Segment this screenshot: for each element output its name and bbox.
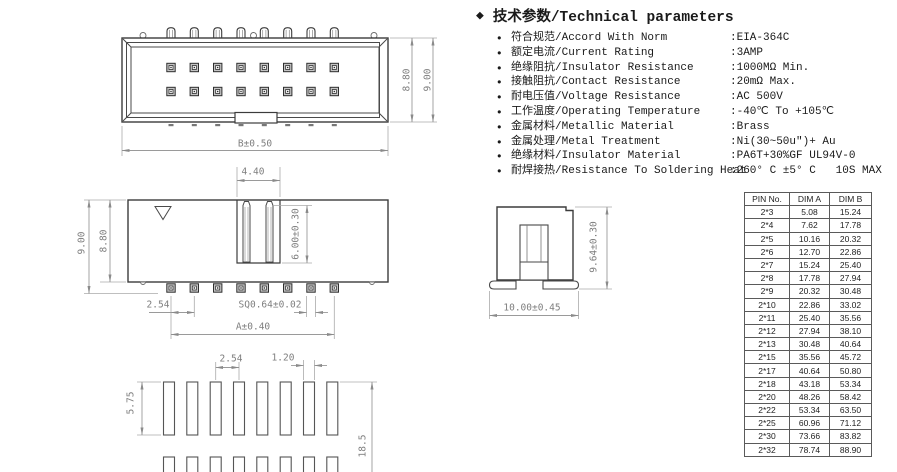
cell-dim-a: 7.62 [790, 219, 830, 232]
dim-label-front-880: 8.80 [99, 230, 109, 253]
parameter-value: :Ni(30~50u")+ Au [730, 135, 836, 150]
cell-dim-a: 20.32 [790, 285, 830, 298]
table-row: 2*12 27.94 38.10 [745, 324, 872, 337]
table-row: 2*17 40.64 50.80 [745, 364, 872, 377]
dim-label-front-900: 9.00 [77, 232, 87, 255]
cell-dim-b: 63.50 [830, 404, 872, 417]
polarization-notch [235, 113, 277, 124]
cell-dim-b: 22.86 [830, 245, 872, 258]
cell-dim-b: 50.80 [830, 364, 872, 377]
dim-label-185: 18.5 [358, 435, 368, 458]
cell-dim-b: 45.72 [830, 351, 872, 364]
table-row: 2*20 48.26 58.42 [745, 390, 872, 403]
bullet-icon: ● [497, 165, 511, 180]
parameter-label: 金属处理/Metal Treatment [511, 135, 730, 150]
bullet-icon: ● [497, 76, 511, 91]
cell-dim-b: 35.56 [830, 311, 872, 324]
cell-dim-a: 10.16 [790, 232, 830, 245]
footprint-drawing [137, 360, 377, 472]
dim-label-b: B±0.50 [238, 139, 272, 149]
cell-dim-b: 15.24 [830, 206, 872, 219]
cell-dim-b: 71.12 [830, 417, 872, 430]
parameter-label: 额定电流/Current Rating [511, 46, 730, 61]
parameter-value: :AC 500V [730, 90, 783, 105]
table-row: 2*4 7.62 17.78 [745, 219, 872, 232]
cell-pin-no: 2*7 [745, 258, 790, 271]
parameter-row: ● 额定电流/Current Rating :3AMP [497, 46, 896, 61]
top-view-drawing [122, 28, 437, 156]
cell-dim-a: 48.26 [790, 390, 830, 403]
parameter-value: :1000MΩ Min. [730, 61, 809, 76]
parameter-list: ● 符合规范/Accord With Norm :EIA-364C ● 额定电流… [476, 31, 896, 179]
dimensions-table: PIN No. DIM A DIM B 2*3 5.08 15.24 2*4 7… [744, 192, 872, 457]
cell-pin-no: 2*4 [745, 219, 790, 232]
dim-label-575: 5.75 [126, 392, 136, 415]
table-row: 2*10 22.86 33.02 [745, 298, 872, 311]
cell-pin-no: 2*10 [745, 298, 790, 311]
table-row: 2*30 73.66 83.82 [745, 430, 872, 443]
bullet-icon: ● [497, 106, 511, 121]
dim-label-front-254: 2.54 [147, 300, 170, 310]
header-dim-b: DIM B [830, 193, 872, 206]
table-row: 2*3 5.08 15.24 [745, 206, 872, 219]
cell-dim-a: 73.66 [790, 430, 830, 443]
parameter-row: ● 绝缘阻抗/Insulator Resistance :1000MΩ Min. [497, 61, 896, 76]
parameter-label: 绝缘材料/Insulator Material [511, 149, 730, 164]
dim-label-a: A±0.40 [236, 322, 270, 332]
cell-dim-b: 53.34 [830, 377, 872, 390]
dim-label-sq064: SQ0.64±0.02 [239, 300, 302, 310]
table-row: 2*18 43.18 53.34 [745, 377, 872, 390]
parameter-row: ● 工作温度/Operating Temperature :-40℃ To +1… [497, 105, 896, 120]
parameter-row: ● 接触阻抗/Contact Resistance :20mΩ Max. [497, 75, 896, 90]
parameter-label: 耐焊接热/Resistance To Soldering Heat [511, 164, 730, 179]
cell-pin-no: 2*12 [745, 324, 790, 337]
parameter-label: 符合规范/Accord With Norm [511, 31, 730, 46]
parameter-value: :Brass [730, 120, 770, 135]
cell-pin-no: 2*13 [745, 338, 790, 351]
bullet-icon: ● [497, 91, 511, 106]
table-header-row: PIN No. DIM A DIM B [745, 193, 872, 206]
cell-pin-no: 2*30 [745, 430, 790, 443]
bullet-icon: ● [497, 62, 511, 77]
cell-pin-no: 2*17 [745, 364, 790, 377]
cell-dim-a: 60.96 [790, 417, 830, 430]
cell-dim-a: 22.86 [790, 298, 830, 311]
parameter-row: ● 绝缘材料/Insulator Material :PA6T+30%GF UL… [497, 149, 896, 164]
bullet-icon: ● [497, 136, 511, 151]
bullet-icon: ● [497, 47, 511, 62]
dim-label-fp-120: 1.20 [272, 353, 295, 363]
dim-label-440: 4.40 [242, 167, 265, 177]
cell-dim-a: 17.78 [790, 272, 830, 285]
cell-pin-no: 2*18 [745, 377, 790, 390]
diamond-icon: ◆ [476, 9, 484, 22]
parameter-value: :260° C ±5° C 10S MAX [730, 164, 882, 179]
cell-dim-b: 88.90 [830, 443, 872, 456]
cell-dim-a: 43.18 [790, 377, 830, 390]
cell-pin-no: 2*11 [745, 311, 790, 324]
header-pin-no: PIN No. [745, 193, 790, 206]
parameter-label: 接触阻抗/Contact Resistance [511, 75, 730, 90]
table-row: 2*13 30.48 40.64 [745, 338, 872, 351]
parameter-value: :3AMP [730, 46, 763, 61]
table-row: 2*11 25.40 35.56 [745, 311, 872, 324]
cell-dim-a: 53.34 [790, 404, 830, 417]
bullet-icon: ● [497, 121, 511, 136]
cell-dim-b: 25.40 [830, 258, 872, 271]
cell-pin-no: 2*5 [745, 232, 790, 245]
technical-parameters-panel: ◆ 技术参数/Technical parameters ● 符合规范/Accor… [476, 5, 896, 179]
parameter-label: 工作温度/Operating Temperature [511, 105, 730, 120]
top-view-body [122, 38, 388, 122]
parameter-label: 绝缘阻抗/Insulator Resistance [511, 61, 730, 76]
bullet-icon: ● [497, 32, 511, 47]
dim-label-fp-254: 2.54 [220, 354, 243, 364]
cell-dim-a: 40.64 [790, 364, 830, 377]
cell-dim-a: 30.48 [790, 338, 830, 351]
cell-dim-b: 33.02 [830, 298, 872, 311]
cell-dim-b: 30.48 [830, 285, 872, 298]
parameter-row: ● 金属材料/Metallic Material :Brass [497, 120, 896, 135]
cell-dim-a: 35.56 [790, 351, 830, 364]
left-smt-lead [490, 281, 517, 289]
cell-dim-a: 12.70 [790, 245, 830, 258]
parameter-label: 金属材料/Metallic Material [511, 120, 730, 135]
parameter-row: ● 耐焊接热/Resistance To Soldering Heat :260… [497, 164, 896, 179]
dim-label-top-900: 9.00 [423, 69, 433, 92]
parameter-row: ● 符合规范/Accord With Norm :EIA-364C [497, 31, 896, 46]
panel-title-text: 技术参数/Technical parameters [493, 5, 734, 26]
parameter-row: ● 金属处理/Metal Treatment :Ni(30~50u")+ Au [497, 135, 896, 150]
table-row: 2*8 17.78 27.94 [745, 272, 872, 285]
table-row: 2*25 60.96 71.12 [745, 417, 872, 430]
parameter-value: :20mΩ Max. [730, 75, 796, 90]
cell-dim-b: 83.82 [830, 430, 872, 443]
cell-pin-no: 2*15 [745, 351, 790, 364]
right-smt-lead [543, 281, 579, 289]
cell-dim-a: 5.08 [790, 206, 830, 219]
table-row: 2*5 10.16 20.32 [745, 232, 872, 245]
parameter-value: :EIA-364C [730, 31, 789, 46]
front-view-drawing [84, 167, 388, 339]
panel-title: ◆ 技术参数/Technical parameters [476, 5, 896, 26]
cell-dim-b: 38.10 [830, 324, 872, 337]
table-row: 2*32 78.74 88.90 [745, 443, 872, 456]
cell-pin-no: 2*20 [745, 390, 790, 403]
dim-label-top-880: 8.80 [402, 69, 412, 92]
bullet-icon: ● [497, 150, 511, 165]
cell-pin-no: 2*3 [745, 206, 790, 219]
cell-dim-a: 15.24 [790, 258, 830, 271]
header-dim-a: DIM A [790, 193, 830, 206]
table-row: 2*7 15.24 25.40 [745, 258, 872, 271]
dim-label-964: 9.64±0.30 [589, 221, 599, 272]
parameter-row: ● 耐电压值/Voltage Resistance :AC 500V [497, 90, 896, 105]
cell-dim-b: 17.78 [830, 219, 872, 232]
cell-pin-no: 2*22 [745, 404, 790, 417]
parameter-value: :-40℃ To +105℃ [730, 105, 834, 120]
cell-pin-no: 2*25 [745, 417, 790, 430]
cell-pin-no: 2*8 [745, 272, 790, 285]
table-row: 2*9 20.32 30.48 [745, 285, 872, 298]
cell-dim-b: 40.64 [830, 338, 872, 351]
table-row: 2*6 12.70 22.86 [745, 245, 872, 258]
cell-pin-no: 2*9 [745, 285, 790, 298]
datasheet-page: B±0.50 8.80 9.00 4.40 6.00±0.30 9.00 8.8… [0, 0, 897, 472]
cell-dim-b: 20.32 [830, 232, 872, 245]
cell-pin-no: 2*32 [745, 443, 790, 456]
table-row: 2*22 53.34 63.50 [745, 404, 872, 417]
cell-dim-b: 27.94 [830, 272, 872, 285]
cell-pin-no: 2*6 [745, 245, 790, 258]
dim-label-1000: 10.00±0.45 [503, 303, 560, 313]
cell-dim-a: 25.40 [790, 311, 830, 324]
parameter-value: :PA6T+30%GF UL94V-0 [730, 149, 855, 164]
cell-dim-a: 78.74 [790, 443, 830, 456]
dim-label-600: 6.00±0.30 [291, 208, 301, 259]
parameter-label: 耐电压值/Voltage Resistance [511, 90, 730, 105]
cell-dim-a: 27.94 [790, 324, 830, 337]
table-row: 2*15 35.56 45.72 [745, 351, 872, 364]
cell-dim-b: 58.42 [830, 390, 872, 403]
